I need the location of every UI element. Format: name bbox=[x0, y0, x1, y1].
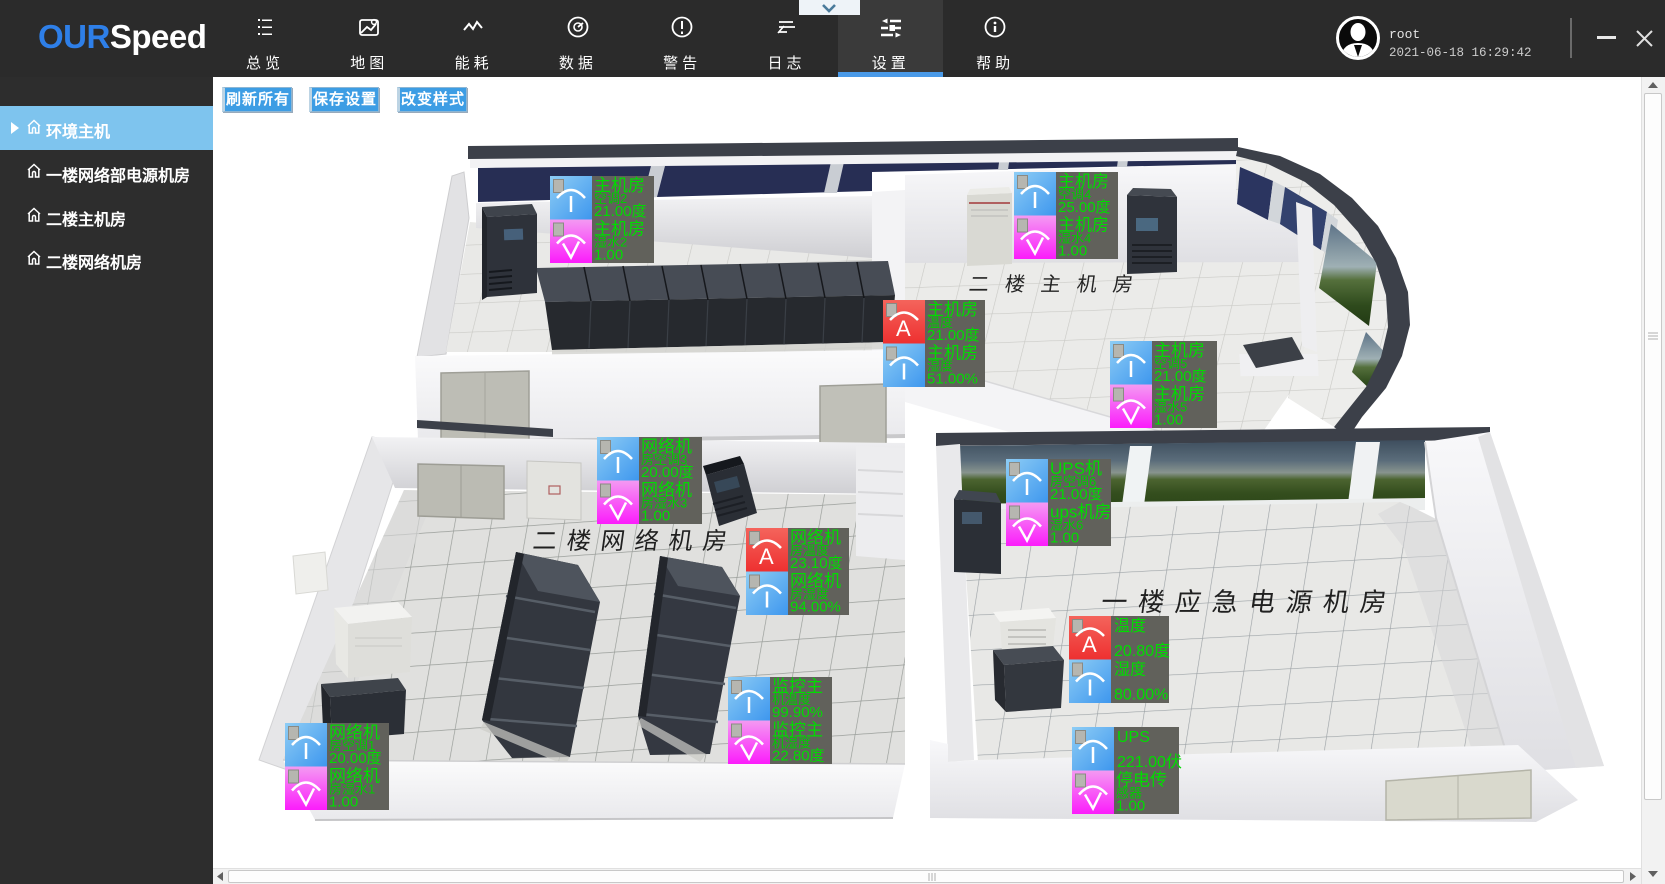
svg-text:1.00: 1.00 bbox=[1058, 243, 1087, 260]
svg-text:20.00度: 20.00度 bbox=[329, 750, 382, 767]
svg-text:21.00度: 21.00度 bbox=[927, 327, 980, 344]
svg-text:A: A bbox=[759, 544, 774, 569]
svg-text:A: A bbox=[896, 316, 911, 341]
svg-text:A: A bbox=[1082, 632, 1097, 657]
svg-text:1.00: 1.00 bbox=[1154, 412, 1183, 429]
svg-text:一楼应急电源机房: 一楼应急电源机房 bbox=[1099, 587, 1399, 617]
svg-text:21.00度: 21.00度 bbox=[1154, 368, 1207, 385]
svg-text:25.00度: 25.00度 bbox=[1058, 199, 1111, 216]
svg-text:21.00度: 21.00度 bbox=[594, 203, 647, 220]
svg-text:1.00: 1.00 bbox=[1050, 530, 1079, 547]
svg-text:二楼网络机房: 二楼网络机房 bbox=[531, 528, 739, 555]
svg-text:221.00伏: 221.00伏 bbox=[1117, 753, 1182, 771]
svg-text:二楼主机房: 二楼主机房 bbox=[967, 273, 1150, 296]
svg-text:1.00: 1.00 bbox=[641, 508, 670, 525]
svg-text:99.90%: 99.90% bbox=[772, 704, 823, 721]
svg-text:21.00度: 21.00度 bbox=[1050, 486, 1103, 503]
svg-text:23.10度: 23.10度 bbox=[790, 555, 843, 572]
svg-text:20.80度: 20.80度 bbox=[1114, 642, 1170, 660]
svg-text:94.00%: 94.00% bbox=[790, 599, 841, 616]
svg-text:1.00: 1.00 bbox=[329, 794, 358, 811]
svg-text:51.00%: 51.00% bbox=[927, 371, 978, 388]
svg-text:1.00: 1.00 bbox=[594, 247, 623, 264]
svg-text:80.00%: 80.00% bbox=[1114, 687, 1168, 704]
svg-text:1.00: 1.00 bbox=[1116, 798, 1145, 815]
svg-text:20.00度: 20.00度 bbox=[641, 464, 694, 481]
svg-text:22.80度: 22.80度 bbox=[772, 748, 825, 765]
svg-text:UPS: UPS bbox=[1117, 729, 1150, 746]
svg-text:湿度: 湿度 bbox=[1114, 661, 1146, 679]
svg-text:温度: 温度 bbox=[1114, 617, 1146, 635]
